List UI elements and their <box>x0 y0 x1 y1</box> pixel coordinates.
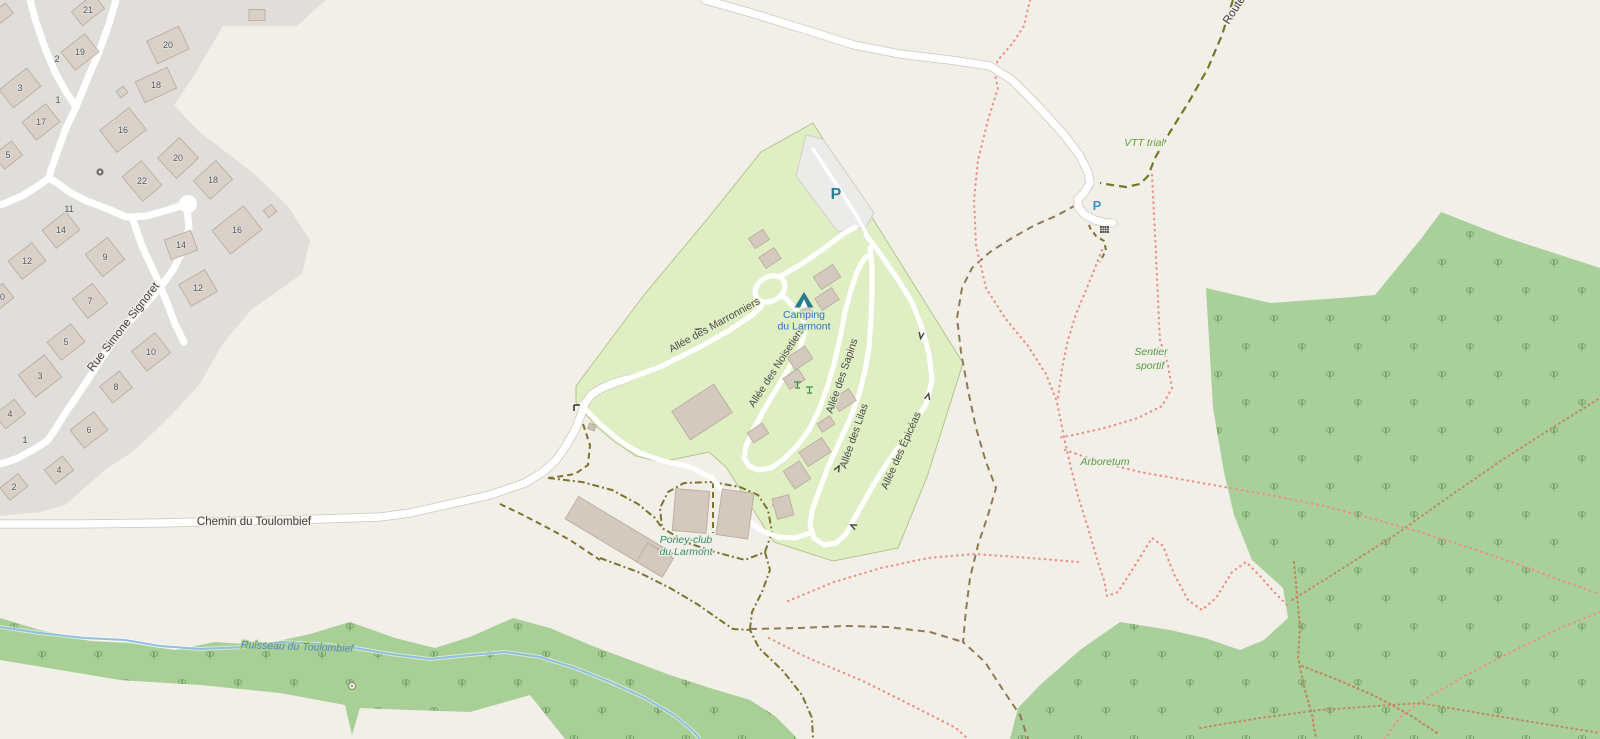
svg-text:10: 10 <box>0 292 5 302</box>
svg-text:9: 9 <box>102 252 107 262</box>
svg-text:VTT trial: VTT trial <box>1124 137 1164 149</box>
svg-text:18: 18 <box>208 175 218 185</box>
svg-text:5: 5 <box>63 337 68 347</box>
svg-text:3: 3 <box>17 83 22 93</box>
svg-text:du Larmont: du Larmont <box>659 546 713 558</box>
svg-text:4: 4 <box>7 409 12 419</box>
svg-text:16: 16 <box>232 225 242 235</box>
svg-text:1: 1 <box>22 435 27 445</box>
svg-text:Sentier: Sentier <box>1134 346 1168 358</box>
svg-text:P: P <box>1093 198 1102 213</box>
svg-text:3: 3 <box>37 371 42 381</box>
svg-text:2: 2 <box>11 482 16 492</box>
svg-text:5: 5 <box>5 150 10 160</box>
svg-text:2: 2 <box>54 54 59 64</box>
svg-text:Arboretum: Arboretum <box>1079 456 1129 468</box>
svg-text:12: 12 <box>193 283 203 293</box>
svg-text:Camping: Camping <box>783 309 825 321</box>
svg-text:22: 22 <box>137 176 147 186</box>
svg-text:Chemin du Toulombief: Chemin du Toulombief <box>197 516 312 528</box>
svg-text:11: 11 <box>64 204 73 214</box>
svg-text:10: 10 <box>146 347 156 357</box>
svg-text:19: 19 <box>75 47 85 57</box>
svg-text:20: 20 <box>173 153 183 163</box>
svg-text:18: 18 <box>151 80 161 90</box>
svg-text:12: 12 <box>22 256 32 266</box>
svg-text:Poney-club: Poney-club <box>660 534 713 546</box>
svg-text:20: 20 <box>163 40 173 50</box>
svg-text:4: 4 <box>56 465 61 475</box>
svg-text:17: 17 <box>36 117 46 127</box>
svg-text:16: 16 <box>118 125 128 135</box>
svg-text:6: 6 <box>86 425 91 435</box>
svg-text:sportif: sportif <box>1136 360 1166 372</box>
svg-text:21: 21 <box>83 5 93 15</box>
svg-text:14: 14 <box>176 240 186 250</box>
svg-text:1: 1 <box>55 95 60 105</box>
svg-text:14: 14 <box>56 225 66 235</box>
svg-text:8: 8 <box>113 382 118 392</box>
svg-text:P: P <box>831 186 842 203</box>
svg-text:7: 7 <box>87 296 92 306</box>
svg-text:du Larmont: du Larmont <box>777 321 830 333</box>
